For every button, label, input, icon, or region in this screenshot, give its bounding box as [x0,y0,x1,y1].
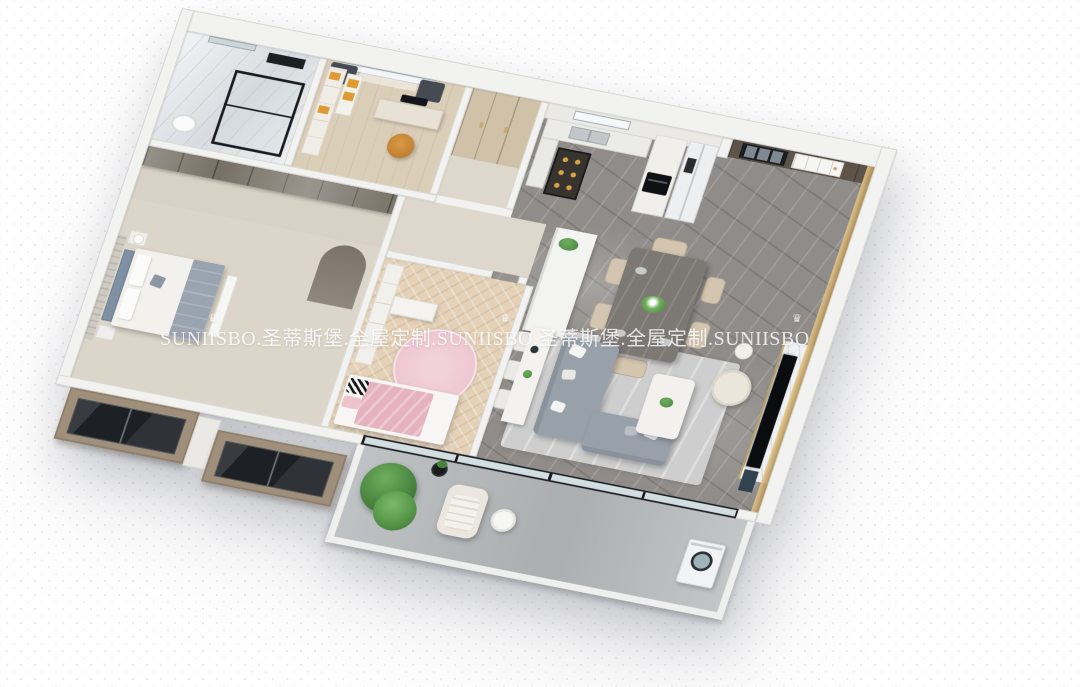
display-light [553,182,560,188]
round-side-table [487,507,519,534]
kids-desk [389,296,439,322]
crown-icon: ♛ [500,312,510,325]
display-light [566,185,573,191]
apartment-render-canvas: SUNIISBO.圣蒂斯堡.全屋定制.SUNIISBO.圣蒂斯堡.全屋定制.SU… [0,0,1080,687]
crown-icon: ♛ [208,312,218,325]
display-light [570,172,577,178]
toilet [169,112,199,134]
bathroom-vanity [266,53,306,70]
display-light [558,170,565,176]
bay-window-kids-exterior [201,430,347,507]
watermark: SUNIISBO.圣蒂斯堡.全屋定制.SUNIISBO.圣蒂斯堡.全屋定制.SU… [160,322,810,351]
crown-icon: ♛ [792,312,802,325]
nightstand [95,324,117,340]
orange-desk-chair [384,131,418,160]
display-light [562,157,569,163]
sofa-pillow [561,369,576,379]
dining-chair [699,276,727,305]
display-light [574,159,581,165]
watermark-text: SUNIISBO.圣蒂斯堡.全屋定制.SUNIISBO.圣蒂斯堡.全屋定制.SU… [160,328,810,350]
apartment-3d-model [20,8,897,629]
